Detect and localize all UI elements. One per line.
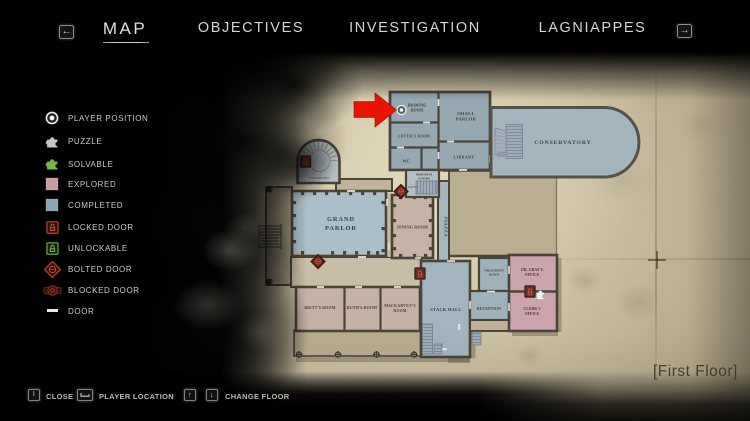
svg-text:CLERK'S: CLERK'S	[523, 307, 540, 311]
svg-text:OFFICE: OFFICE	[525, 273, 540, 277]
svg-text:ROOM: ROOM	[489, 273, 499, 277]
svg-text:OFFICE: OFFICE	[525, 312, 540, 316]
svg-text:CONSERVATORY: CONSERVATORY	[534, 140, 591, 146]
svg-text:DR. GRAY'S: DR. GRAY'S	[521, 268, 543, 272]
svg-text:RECEPTION: RECEPTION	[477, 307, 501, 311]
